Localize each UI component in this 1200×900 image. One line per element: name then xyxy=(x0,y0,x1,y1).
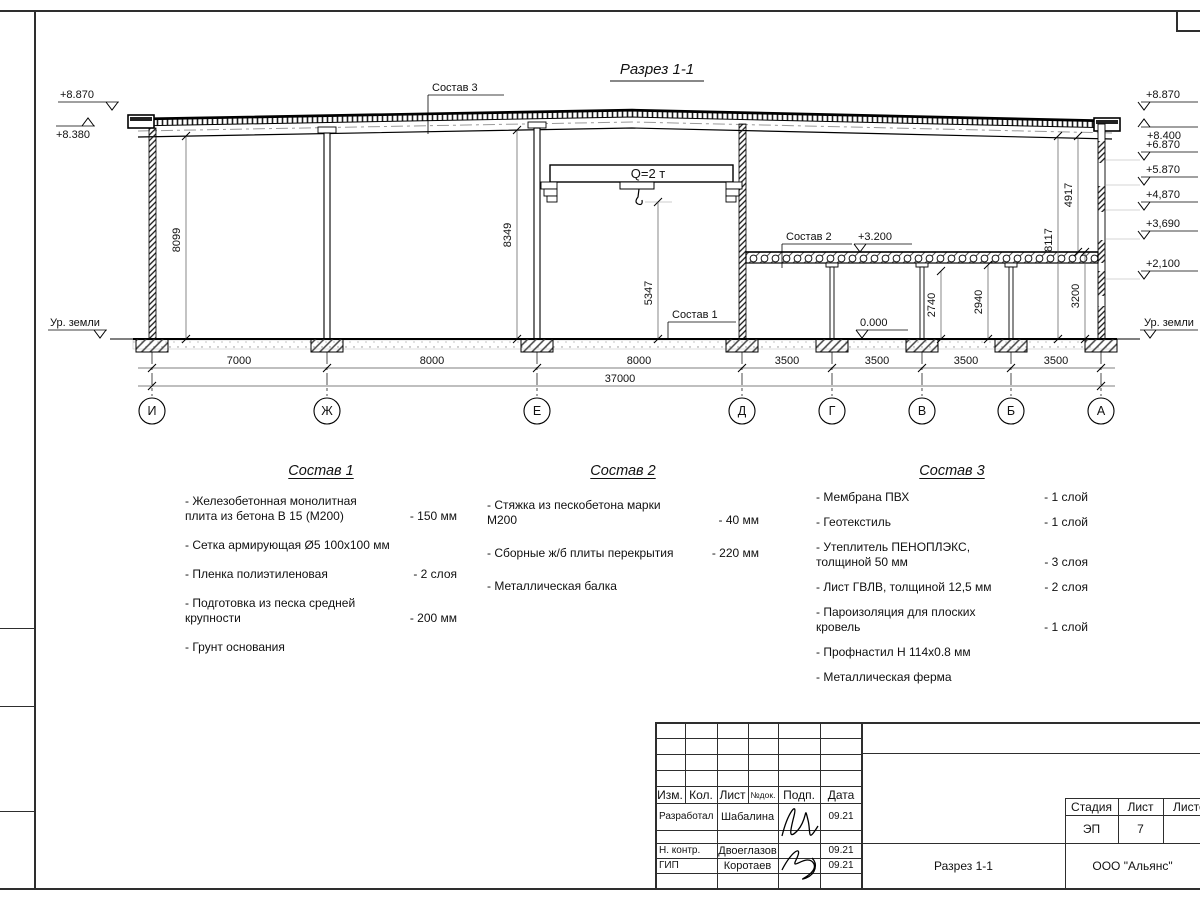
list-item: - Подготовка из песка средней крупности-… xyxy=(185,596,457,626)
role-cell: Разработал xyxy=(655,803,721,830)
svg-text:8349: 8349 xyxy=(502,223,514,247)
rev-header-ndok: №док. xyxy=(748,786,778,803)
svg-text:+8.870: +8.870 xyxy=(1146,89,1180,101)
callout-sostav-2: Состав 2 xyxy=(786,231,832,243)
composition-block-2: Состав 2 - Стяжка из пескобетона марки М… xyxy=(487,462,759,594)
svg-text:4917: 4917 xyxy=(1063,183,1075,207)
name-cell: Двоеглазов xyxy=(717,843,778,858)
svg-text:Г: Г xyxy=(829,404,836,418)
rev-header-data: Дата xyxy=(820,786,862,803)
svg-text:+3.200: +3.200 xyxy=(858,231,892,243)
post-axis-b xyxy=(1009,267,1013,339)
svg-text:+6.870: +6.870 xyxy=(1146,139,1180,151)
composition-block-1: Состав 1 - Железобетонная монолитная пли… xyxy=(185,462,457,655)
column-axis-e xyxy=(534,128,540,339)
stage-label: Стадия xyxy=(1065,798,1118,815)
list-item: - Металлическая балка xyxy=(487,579,759,594)
svg-text:Ур. земли: Ур. земли xyxy=(1144,317,1194,329)
wall-axis-d xyxy=(739,124,746,339)
list-item: - Стяжка из пескобетона марки М200- 40 м… xyxy=(487,498,759,528)
bottom-dimensions: 7000 8000 8000 3500 3500 3500 3500 37000 xyxy=(138,355,1115,390)
drawing-sheet: Разрез 1-1 xyxy=(0,0,1200,900)
sheet-value: 7 xyxy=(1118,815,1163,843)
frame-margin-tick xyxy=(0,811,34,812)
crane-trolley xyxy=(620,182,654,189)
vertical-dimensions xyxy=(182,126,1089,343)
page-title: Разрез 1-1 xyxy=(620,61,694,78)
svg-text:+8.380: +8.380 xyxy=(56,129,90,141)
name-cell: Шабалина xyxy=(717,803,778,830)
rev-header-list: Лист xyxy=(717,786,748,803)
sheet-label: Лист xyxy=(1118,798,1163,815)
date-cell: 09.21 xyxy=(820,843,862,858)
svg-text:Е: Е xyxy=(533,404,541,418)
total-dimension: 37000 xyxy=(605,373,636,385)
post-axis-v xyxy=(920,267,924,339)
callout-sostav-1: Состав 1 xyxy=(672,309,718,321)
list-item: - Геотекстиль- 1 слой xyxy=(816,515,1088,530)
svg-text:8117: 8117 xyxy=(1043,228,1055,252)
svg-text:3200: 3200 xyxy=(1070,284,1082,308)
columns xyxy=(149,122,1105,339)
svg-text:+3,690: +3,690 xyxy=(1146,218,1180,230)
parapet-left xyxy=(128,115,154,128)
name-cell: Коротаев xyxy=(717,858,778,873)
list-item: - Грунт основания xyxy=(185,640,457,655)
list-item: - Лист ГВЛВ, толщиной 12,5 мм- 2 слоя xyxy=(816,580,1088,595)
svg-text:3500: 3500 xyxy=(865,355,889,367)
title-block: Изм. Кол. Лист №док. Подп. Дата Разработ… xyxy=(655,722,1200,890)
elevation-marks-left: +8.870 +8.380 Ур. земли xyxy=(48,89,119,338)
role-cell: ГИП xyxy=(655,858,721,873)
svg-text:+5.870: +5.870 xyxy=(1146,164,1180,176)
role-cell: Н. контр. xyxy=(655,843,721,858)
svg-text:Б: Б xyxy=(1007,404,1015,418)
svg-text:В: В xyxy=(918,404,926,418)
svg-text:5347: 5347 xyxy=(643,281,655,305)
axis-bubbles: И Ж Е Д Г В Б А xyxy=(139,398,1114,424)
date-cell: 09.21 xyxy=(820,803,862,830)
svg-text:Ур. земли: Ур. земли xyxy=(50,317,100,329)
document-name: Разрез 1-1 xyxy=(862,843,1065,888)
svg-text:Ж: Ж xyxy=(321,404,333,418)
list-item: - Железобетонная монолитная плита из бет… xyxy=(185,494,457,524)
svg-text:А: А xyxy=(1097,404,1106,418)
list-item: - Пленка полиэтиленовая- 2 слоя xyxy=(185,567,457,582)
post-axis-g xyxy=(830,267,834,339)
list-item: - Мембрана ПВХ- 1 слой xyxy=(816,490,1088,505)
crane-beam: Q=2 т xyxy=(541,165,742,206)
column-axis-zh xyxy=(324,133,330,339)
list-item: - Сборные ж/б плиты перекрытия- 220 мм xyxy=(487,546,759,561)
svg-text:+8.870: +8.870 xyxy=(60,89,94,101)
rev-header-izm: Изм. xyxy=(655,786,685,803)
section-drawing: Разрез 1-1 xyxy=(0,0,1200,455)
svg-text:2940: 2940 xyxy=(973,290,985,314)
svg-text:2740: 2740 xyxy=(926,293,938,317)
svg-text:8000: 8000 xyxy=(627,355,651,367)
svg-text:+2,100: +2,100 xyxy=(1146,258,1180,270)
internal-level-marks: +3.200 0.000 xyxy=(854,231,912,338)
svg-text:И: И xyxy=(148,404,157,418)
svg-text:8000: 8000 xyxy=(420,355,444,367)
svg-text:3500: 3500 xyxy=(954,355,978,367)
svg-text:7000: 7000 xyxy=(227,355,251,367)
svg-text:3500: 3500 xyxy=(1044,355,1068,367)
signature xyxy=(778,838,822,886)
date-cell: 09.21 xyxy=(820,858,862,873)
company-name: ООО "Альянс" xyxy=(1065,843,1200,888)
callout-sostav-3: Состав 3 xyxy=(432,82,478,94)
sheets-label: Листов xyxy=(1169,798,1200,815)
svg-text:+4,870: +4,870 xyxy=(1146,189,1180,201)
stage-value: ЭП xyxy=(1065,815,1118,843)
composition-title: Состав 1 xyxy=(185,462,457,480)
drawing-title: Разрез 1-1 xyxy=(610,61,704,81)
composition-block-3: Состав 3 - Мембрана ПВХ- 1 слой - Геотек… xyxy=(816,462,1088,685)
mezzanine-floor xyxy=(746,252,1098,339)
list-item: - Утеплитель ПЕНОПЛЭКС, толщиной 50 мм- … xyxy=(816,540,1088,570)
frame-margin-tick xyxy=(0,628,34,629)
list-item: - Металлическая ферма xyxy=(816,670,1088,685)
svg-text:8099: 8099 xyxy=(171,228,183,252)
list-item: - Пароизоляция для плоских кровель- 1 сл… xyxy=(816,605,1088,635)
composition-title: Состав 3 xyxy=(816,462,1088,480)
list-item: - Сетка армирующая Ø5 100х100 мм xyxy=(185,538,457,553)
vertical-dimension-labels: 8099 8349 5347 2740 2940 3200 8117 4917 xyxy=(171,183,1082,317)
composition-title: Состав 2 xyxy=(487,462,759,480)
crane-hook xyxy=(636,189,642,205)
wall-axis-i xyxy=(149,128,156,339)
list-item: - Профнастил Н 114х0.8 мм xyxy=(816,645,1088,660)
svg-text:Д: Д xyxy=(738,404,747,418)
rev-header-kol: Кол. xyxy=(685,786,717,803)
frame-margin-tick xyxy=(0,706,34,707)
crane-capacity-label: Q=2 т xyxy=(631,166,666,181)
roof-truss xyxy=(128,110,1120,139)
svg-text:3500: 3500 xyxy=(775,355,799,367)
svg-text:0.000: 0.000 xyxy=(860,317,888,329)
